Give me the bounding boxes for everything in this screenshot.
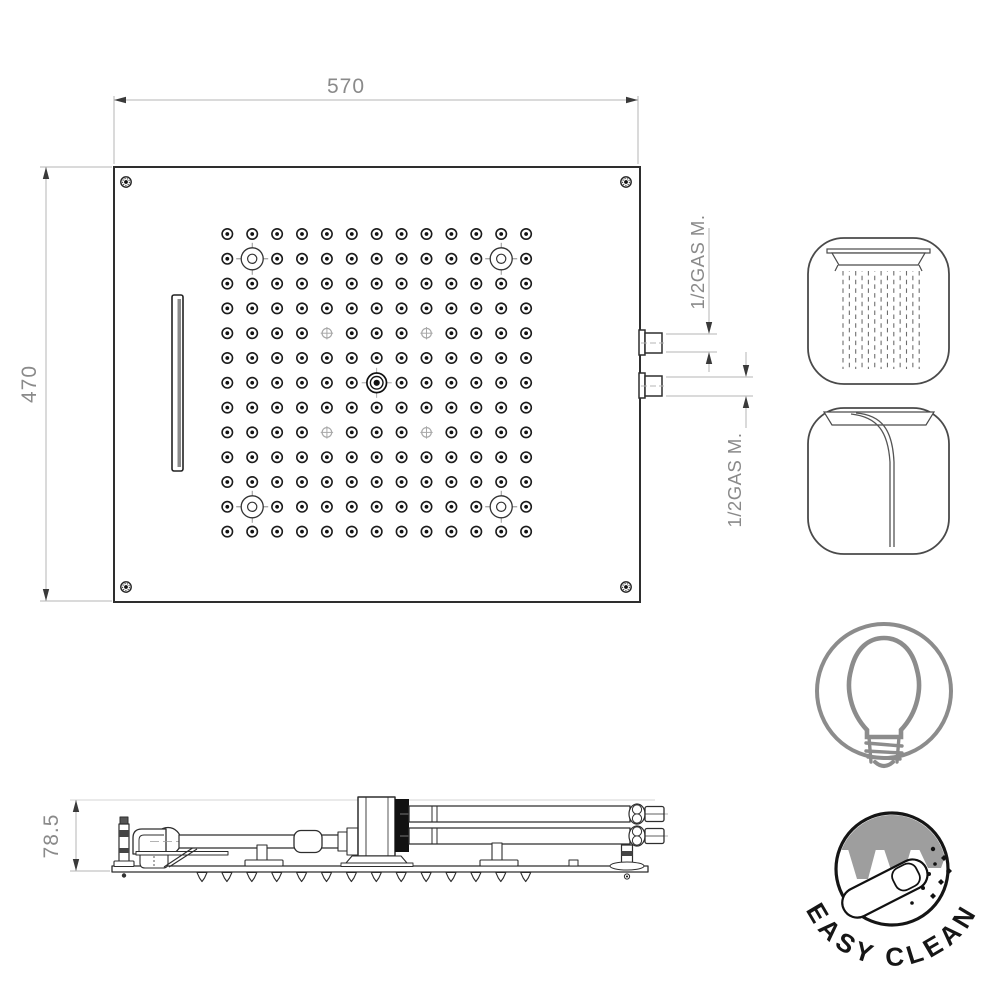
connector-top [639,330,664,355]
spray-nozzle [521,402,531,412]
side-view: 78.5 [40,797,668,882]
connector-top-label: 1/2GAS M. [687,215,708,310]
spray-nozzle [471,477,481,487]
spray-nozzle [272,303,282,313]
arrow-down-icon [43,589,49,601]
spray-nozzle [347,328,357,338]
spray-nozzle [347,229,357,239]
spray-nozzle [347,378,357,388]
spray-cone [322,873,332,882]
spray-nozzle [272,402,282,412]
spray-nozzle [322,477,332,487]
spray-nozzle [396,402,406,412]
spray-nozzle [347,526,357,536]
spray-nozzle [247,278,257,288]
spray-nozzle [297,229,307,239]
spray-nozzle [297,353,307,363]
spray-nozzle [347,477,357,487]
spray-nozzle [396,353,406,363]
spray-cone [222,873,232,882]
spray-nozzle [496,427,506,437]
spray-nozzle [446,477,456,487]
spray-nozzle [247,427,257,437]
spray-cone [521,873,531,882]
spray-nozzle [446,402,456,412]
spray-nozzle [297,328,307,338]
spray-cone [197,873,207,882]
spray-cone [446,873,456,882]
spray-nozzle [421,353,431,363]
spray-nozzle [222,526,232,536]
spray-nozzle [446,254,456,264]
spray-nozzle [421,502,431,512]
spray-nozzle [322,254,332,264]
spray-nozzle [396,278,406,288]
spray-nozzle [272,278,282,288]
spray-nozzle [446,328,456,338]
spray-nozzle [222,427,232,437]
spray-nozzle [272,526,282,536]
spray-nozzle [471,328,481,338]
spray-cone [297,873,307,882]
spray-nozzle [222,229,232,239]
spray-nozzle [471,402,481,412]
water-connectors: 1/2GAS M. 1/2GAS M. [639,215,753,528]
spray-nozzle [247,526,257,536]
spray-nozzle [396,378,406,388]
spray-nozzle [521,229,531,239]
spray-nozzle [247,328,257,338]
spray-nozzle [496,378,506,388]
spray-nozzle [396,427,406,437]
spray-nozzle [471,452,481,462]
spray-nozzle [222,254,232,264]
spray-nozzle [247,402,257,412]
spray-cone [272,873,282,882]
spray-nozzle [471,229,481,239]
spray-nozzle [247,353,257,363]
spray-nozzle [446,229,456,239]
spray-nozzle [521,353,531,363]
spray-nozzle [222,278,232,288]
spray-nozzle [496,353,506,363]
spray-nozzle [446,303,456,313]
spray-nozzle [322,303,332,313]
spray-nozzle [247,452,257,462]
spray-nozzle [496,526,506,536]
spray-nozzle [496,229,506,239]
spray-nozzle [247,229,257,239]
spray-nozzle [471,353,481,363]
spray-nozzle [322,526,332,536]
spray-nozzle [421,278,431,288]
top-view: 570 470 [18,75,753,602]
spray-nozzle [322,278,332,288]
spray-nozzle [322,452,332,462]
spray-nozzle [272,254,282,264]
spray-nozzle [372,526,382,536]
spray-nozzle [496,278,506,288]
spray-nozzle [521,378,531,388]
spray-nozzle [421,303,431,313]
spray-nozzle [496,452,506,462]
spray-nozzle [347,278,357,288]
spray-nozzle [322,353,332,363]
spray-nozzle [222,502,232,512]
rain-shower-icon [808,238,949,384]
spray-nozzle [396,229,406,239]
spray-nozzle [372,278,382,288]
spray-nozzle [222,402,232,412]
spray-nozzle [521,477,531,487]
spray-nozzle [272,427,282,437]
spray-nozzle [446,278,456,288]
spray-nozzle [297,526,307,536]
spray-nozzle [471,427,481,437]
dimension-depth: 78.5 [40,800,110,871]
spray-cone [346,873,356,882]
spray-nozzle [471,254,481,264]
connector-top-callout: 1/2GAS M. [666,215,717,372]
spray-nozzle [372,502,382,512]
height-dimension-label: 470 [18,365,41,403]
spray-nozzle [297,402,307,412]
spray-nozzle [247,303,257,313]
spray-nozzle [272,328,282,338]
spray-nozzle [421,229,431,239]
spray-nozzle [297,427,307,437]
spray-nozzle [372,254,382,264]
spray-nozzle [347,502,357,512]
spray-nozzle-cones [197,873,531,882]
spray-nozzle [222,303,232,313]
spray-nozzle [297,278,307,288]
spray-nozzle [521,526,531,536]
spray-nozzle [322,229,332,239]
spray-nozzle [421,452,431,462]
spray-nozzle [347,427,357,437]
spray-nozzle [421,254,431,264]
spray-nozzle [347,303,357,313]
spray-nozzle [446,526,456,536]
spray-nozzle [272,477,282,487]
connector-bottom-label: 1/2GAS M. [724,433,745,528]
spray-nozzle [222,378,232,388]
depth-dimension-label: 78.5 [40,814,63,859]
easy-clean-badge: EASY CLEAN [800,810,984,972]
spray-nozzle [347,353,357,363]
spray-nozzle [372,477,382,487]
width-dimension-label: 570 [327,75,365,98]
spray-nozzle [446,353,456,363]
shower-head-drawing: 570 470 [0,0,1000,1000]
spray-nozzle [372,328,382,338]
spray-nozzle [347,452,357,462]
spray-nozzle [372,452,382,462]
arrow-up-icon [43,167,49,179]
spray-cone [247,873,257,882]
waterfall-slot [172,295,183,471]
spray-nozzle [446,378,456,388]
spray-cone [471,873,481,882]
spray-nozzle [446,427,456,437]
arrow-right-icon [626,97,638,103]
spray-nozzle [222,328,232,338]
black-ring [395,799,409,852]
spray-nozzle [471,303,481,313]
spray-nozzle [297,502,307,512]
spray-nozzle [322,378,332,388]
spray-nozzle [272,229,282,239]
spray-nozzle [446,452,456,462]
spray-nozzle [421,477,431,487]
spray-nozzle [297,254,307,264]
spray-nozzle [396,452,406,462]
corner-screw [621,177,631,187]
spray-nozzle [222,353,232,363]
spray-nozzle [322,402,332,412]
spray-nozzle [372,353,382,363]
spray-nozzle [372,229,382,239]
spray-nozzle [421,378,431,388]
spray-nozzle [396,254,406,264]
spray-nozzle [272,452,282,462]
spray-nozzle [222,452,232,462]
spray-nozzle [297,477,307,487]
spray-nozzle [471,526,481,536]
spray-nozzle [372,402,382,412]
spray-nozzle [396,502,406,512]
corner-screw [121,177,131,187]
waterfall-icon [808,408,949,554]
spray-cone [371,873,381,882]
spray-cone [396,873,406,882]
spray-nozzle [222,477,232,487]
spray-nozzle [496,328,506,338]
spray-nozzle [471,378,481,388]
technical-drawing-page: 570 470 [0,0,1000,1000]
spray-nozzle [396,328,406,338]
spray-nozzle [521,452,531,462]
arrow-left-icon [114,97,126,103]
connector-bottom-callout: 1/2GAS M. [666,352,753,527]
spray-nozzle [322,502,332,512]
spray-nozzle [297,378,307,388]
spray-nozzle [496,477,506,487]
spray-nozzle [272,378,282,388]
spray-nozzle [247,477,257,487]
dimension-height: 470 [18,167,112,601]
spray-nozzle [396,303,406,313]
spray-nozzle [297,452,307,462]
spray-nozzle [372,427,382,437]
spray-nozzle [421,402,431,412]
spray-nozzle [521,427,531,437]
spray-nozzle [272,502,282,512]
spray-nozzle [521,303,531,313]
light-bulb-icon [817,624,951,766]
supply-pipes [400,804,668,846]
spray-nozzle [372,303,382,313]
spray-nozzle [496,303,506,313]
spray-nozzle [396,477,406,487]
spray-nozzle [521,254,531,264]
spray-nozzle [272,353,282,363]
arrow-down-icon [73,859,79,871]
dimension-width: 570 [114,75,638,164]
spray-cone [421,873,431,882]
spray-nozzle [247,378,257,388]
spray-nozzle [347,254,357,264]
spray-cone [496,873,506,882]
spray-nozzle [521,278,531,288]
arrow-up-icon [73,800,79,812]
corner-screw [121,582,131,592]
connector-bottom [639,373,664,398]
spray-nozzle [496,402,506,412]
spray-nozzle [446,502,456,512]
spray-nozzle [396,526,406,536]
spray-nozzle [421,526,431,536]
corner-screw [621,582,631,592]
spray-nozzle [521,328,531,338]
spray-nozzle [347,402,357,412]
spray-nozzle [471,502,481,512]
feed-pipe [150,828,360,855]
spray-nozzle [297,303,307,313]
spray-nozzle [471,278,481,288]
spray-nozzle [521,502,531,512]
